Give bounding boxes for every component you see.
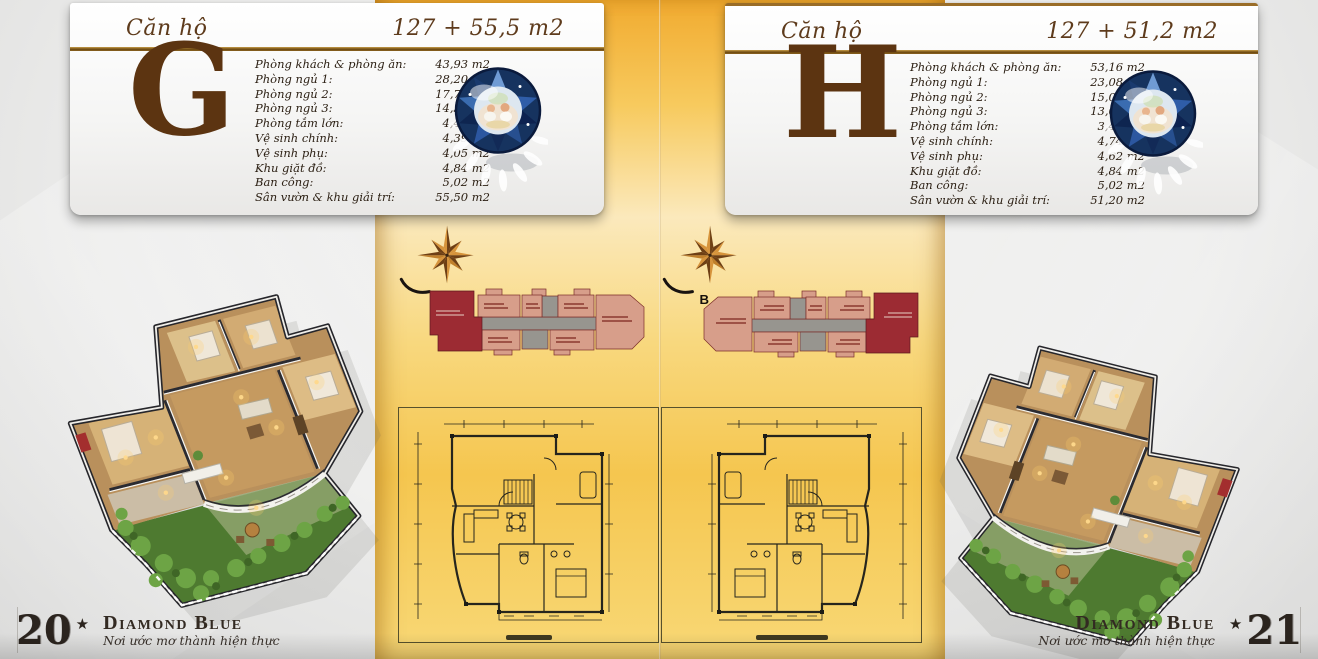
apartment-3d-render-h xyxy=(924,326,1300,659)
apartment-3d-render-g xyxy=(5,274,397,626)
room-label: Sân vườn & khu giải trí: xyxy=(255,190,395,205)
brand-name: Diamond Blue xyxy=(1038,613,1215,633)
room-label: Phòng tắm lớn: xyxy=(910,119,998,134)
floor-plan-frame-g xyxy=(398,407,659,643)
room-label: Khu giặt đồ: xyxy=(255,161,327,176)
card-body: H Phòng khách & phòng ăn: 53,16 m2 Phòng… xyxy=(725,54,1258,206)
card-area-total: 127 + 55,5 m2 xyxy=(392,16,564,41)
room-label: Vệ sinh phụ: xyxy=(255,146,328,161)
star-icon: ★ xyxy=(76,615,89,633)
room-label: Phòng khách & phòng ăn: xyxy=(910,60,1061,75)
room-label: Ban công: xyxy=(255,175,313,190)
apartment-card-h: Căn hộ 127 + 51,2 m2 H Phòng khách & phò… xyxy=(725,3,1258,215)
unit-letter: H xyxy=(783,30,902,156)
building-key-plan-g xyxy=(424,281,654,361)
floor-plan-frame-h xyxy=(661,407,922,643)
room-label: Phòng tắm lớn: xyxy=(255,116,343,131)
room-label: Phòng ngủ 3: xyxy=(255,101,333,116)
star-icon: ★ xyxy=(1229,615,1242,633)
room-label: Phòng ngủ 2: xyxy=(255,87,333,102)
floor-plan-drawing-g xyxy=(404,414,654,632)
room-label: Phòng ngủ 3: xyxy=(910,104,988,119)
room-label: Khu giặt đồ: xyxy=(910,164,982,179)
apartment-card-g: Căn hộ 127 + 55,5 m2 G Phòng khách & phò… xyxy=(70,3,604,215)
room-label: Phòng ngủ 1: xyxy=(255,72,333,87)
card-area-total: 127 + 51,2 m2 xyxy=(1046,19,1218,44)
unit-letter: G xyxy=(128,27,236,153)
diamond-gem-icon xyxy=(1103,66,1203,204)
room-label: Vệ sinh chính: xyxy=(255,131,338,146)
page-bottom-shade xyxy=(0,633,1318,659)
floor-plan-drawing-h xyxy=(667,414,917,632)
room-label: Vệ sinh chính: xyxy=(910,134,993,149)
building-key-plan-h xyxy=(694,283,924,363)
room-label: Vệ sinh phụ: xyxy=(910,149,983,164)
brand-name: Diamond Blue xyxy=(103,613,280,633)
card-body: G Phòng khách & phòng ăn: 43,93 m2 Phòng… xyxy=(70,51,604,203)
room-label: Ban công: xyxy=(910,178,968,193)
room-label: Phòng ngủ 1: xyxy=(910,75,988,90)
brochure-spread: B B Căn hộ 127 + 55,5 m2 xyxy=(0,0,1318,659)
room-label: Sân vườn & khu giải trí: xyxy=(910,193,1050,208)
room-label: Phòng khách & phòng ăn: xyxy=(255,57,406,72)
room-label: Phòng ngủ 2: xyxy=(910,90,988,105)
diamond-gem-icon xyxy=(448,63,548,201)
